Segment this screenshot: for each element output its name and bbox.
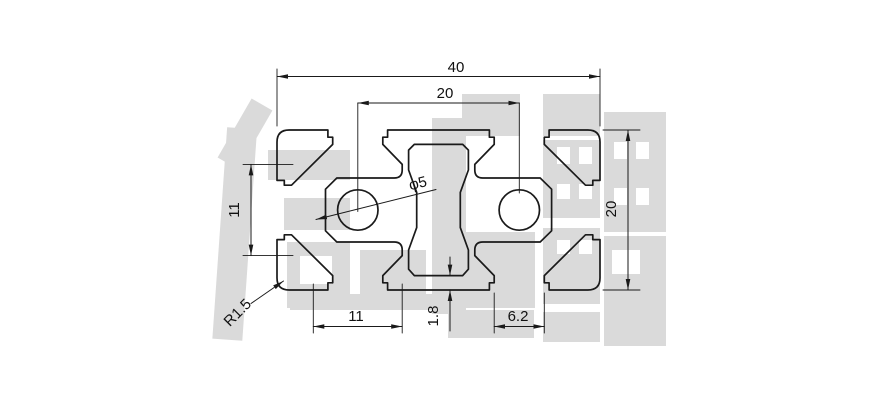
drawing-canvas: 40 20 11 φ5 20	[0, 0, 880, 420]
dim-center-hole-label: φ5	[407, 173, 429, 194]
dim-overall-height-label: 20	[603, 201, 620, 218]
dim-side-cavity-label: 11	[226, 202, 243, 218]
dim-wall-thickness-label: 1.8	[425, 306, 442, 327]
dim-overall-width-label: 40	[448, 59, 465, 76]
technical-drawing: 40 20 11 φ5 20	[0, 0, 880, 420]
dim-hole-pitch-label: 20	[437, 85, 454, 102]
dim-bottom-cavity-label: 11	[348, 308, 364, 325]
dim-slot-opening-label: 6.2	[508, 308, 529, 325]
profile-hole-right	[499, 190, 539, 230]
